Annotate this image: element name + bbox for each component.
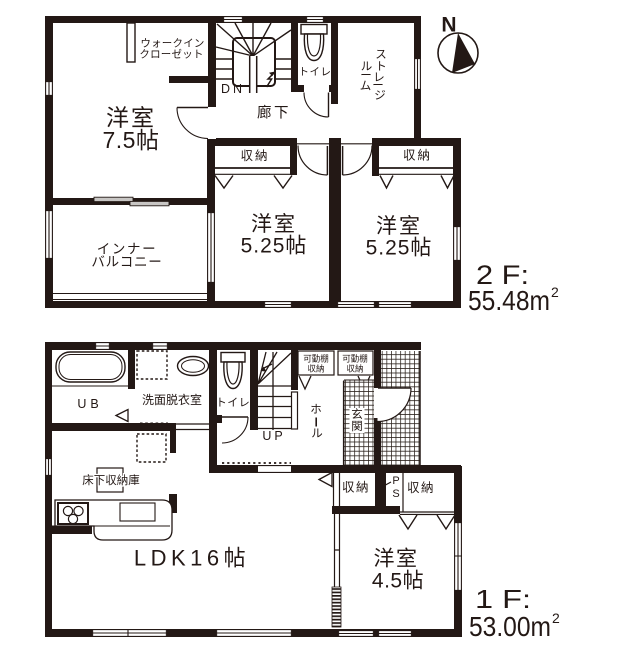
svg-text:1 F:: 1 F:	[475, 584, 531, 614]
svg-text:収納: 収納	[403, 149, 432, 163]
svg-text:可動棚: 可動棚	[342, 354, 368, 364]
svg-text:S: S	[392, 488, 399, 500]
svg-text:DN: DN	[221, 82, 245, 96]
svg-text:5.25帖: 5.25帖	[241, 235, 308, 258]
svg-text:クローゼット: クローゼット	[139, 49, 203, 61]
svg-text:ス: ス	[375, 49, 387, 61]
svg-text:LDK16帖: LDK16帖	[134, 546, 250, 571]
svg-text:バルコニー: バルコニー	[91, 255, 162, 270]
svg-text:4.5帖: 4.5帖	[372, 570, 424, 593]
svg-text:収納: 収納	[346, 364, 363, 374]
svg-text:洗面脱衣室: 洗面脱衣室	[142, 392, 202, 407]
svg-text:関: 関	[351, 420, 363, 433]
svg-text:P: P	[392, 475, 399, 487]
svg-text:ム: ム	[360, 80, 372, 93]
svg-text:7.5帖: 7.5帖	[103, 127, 160, 153]
svg-text:収納: 収納	[240, 149, 269, 163]
svg-text:5.25帖: 5.25帖	[366, 237, 433, 260]
svg-text:53.00m: 53.00m	[469, 611, 551, 642]
svg-text:洋室: 洋室	[376, 215, 422, 238]
svg-text:収納: 収納	[342, 481, 370, 495]
svg-text:ジ: ジ	[374, 90, 386, 102]
svg-text:2: 2	[552, 610, 560, 626]
svg-text:廊下: 廊下	[257, 105, 291, 122]
svg-text:55.48m: 55.48m	[468, 285, 550, 316]
svg-text:床下収納庫: 床下収納庫	[82, 473, 140, 487]
svg-text:トイレ: トイレ	[216, 397, 251, 409]
svg-text:洋室: 洋室	[374, 548, 419, 571]
svg-text:ル: ル	[311, 428, 323, 440]
svg-text:UB: UB	[77, 397, 102, 411]
svg-text:トイレ: トイレ	[299, 66, 332, 78]
svg-text:収納: 収納	[407, 481, 435, 495]
svg-text:UP: UP	[262, 429, 285, 443]
svg-text:洋室: 洋室	[251, 213, 297, 236]
svg-text:2: 2	[551, 284, 559, 300]
svg-text:収納: 収納	[307, 364, 324, 374]
svg-text:可動棚: 可動棚	[303, 354, 329, 364]
svg-text:玄: 玄	[351, 407, 363, 421]
svg-text:ホ: ホ	[310, 403, 322, 416]
